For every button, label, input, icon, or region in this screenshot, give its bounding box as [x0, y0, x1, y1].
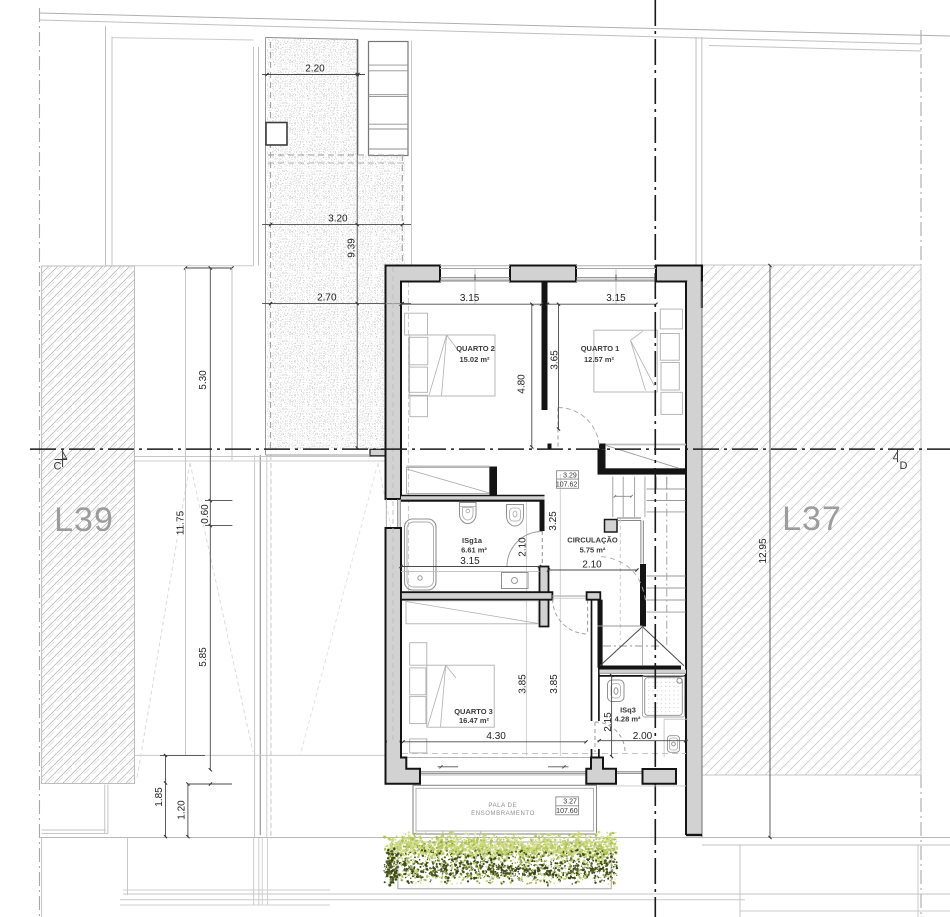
svg-text:L39: L39 — [54, 501, 114, 539]
svg-text:4.80: 4.80 — [517, 374, 528, 394]
svg-text:3.20: 3.20 — [328, 214, 348, 225]
svg-text:3.15: 3.15 — [460, 293, 480, 304]
svg-text:QUARTO 1: QUARTO 1 — [581, 344, 620, 353]
svg-text:107.62: 107.62 — [556, 482, 578, 489]
svg-text:2.20: 2.20 — [305, 64, 325, 75]
svg-text:ENSOMBRAMENTO: ENSOMBRAMENTO — [471, 811, 535, 817]
svg-text:6.61 m²: 6.61 m² — [461, 546, 487, 555]
svg-text:5.85: 5.85 — [198, 647, 209, 667]
svg-text:QUARTO 2: QUARTO 2 — [456, 344, 495, 353]
svg-text:3.29: 3.29 — [563, 472, 577, 479]
svg-text:2.70: 2.70 — [317, 293, 337, 304]
svg-text:2.00: 2.00 — [633, 731, 653, 742]
svg-text:0.60: 0.60 — [200, 504, 211, 524]
svg-text:4.30: 4.30 — [486, 731, 506, 742]
svg-text:1.20: 1.20 — [176, 800, 187, 820]
svg-text:9.39: 9.39 — [347, 238, 358, 258]
svg-text:3.85: 3.85 — [549, 674, 560, 694]
svg-text:C: C — [54, 461, 62, 473]
svg-text:QUARTO 3: QUARTO 3 — [454, 707, 493, 716]
svg-text:ISg1a: ISg1a — [462, 536, 483, 545]
svg-text:12.57 m²: 12.57 m² — [584, 355, 615, 364]
svg-text:3.15: 3.15 — [606, 293, 626, 304]
svg-text:15.02 m²: 15.02 m² — [459, 355, 490, 364]
svg-text:2.10: 2.10 — [518, 537, 529, 557]
svg-text:5.30: 5.30 — [198, 370, 209, 390]
svg-text:5.75 m²: 5.75 m² — [580, 546, 606, 555]
svg-text:12.95: 12.95 — [758, 538, 769, 563]
svg-text:16.47 m²: 16.47 m² — [459, 716, 490, 725]
svg-text:2.15: 2.15 — [603, 712, 614, 732]
svg-text:L37: L37 — [782, 500, 842, 538]
svg-text:107.60: 107.60 — [556, 808, 578, 815]
svg-text:D: D — [900, 460, 908, 472]
svg-text:2.10: 2.10 — [582, 560, 602, 571]
svg-text:1.85: 1.85 — [154, 787, 165, 807]
svg-text:3.65: 3.65 — [550, 350, 561, 370]
svg-text:11.75: 11.75 — [175, 510, 186, 535]
svg-text:3.85: 3.85 — [518, 674, 529, 694]
svg-text:ISq3: ISq3 — [620, 706, 636, 715]
svg-text:3.15: 3.15 — [460, 556, 480, 567]
svg-text:PALA DE: PALA DE — [488, 803, 517, 809]
svg-text:3.25: 3.25 — [548, 511, 559, 531]
svg-text:CIRCULAÇÃO: CIRCULAÇÃO — [567, 536, 618, 545]
svg-text:3.27: 3.27 — [563, 799, 577, 806]
svg-text:4.28 m²: 4.28 m² — [615, 715, 641, 724]
